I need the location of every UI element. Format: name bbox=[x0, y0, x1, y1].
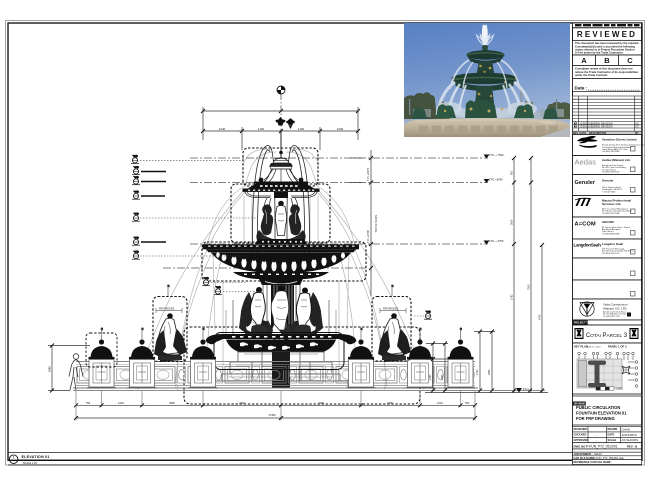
svg-text:Tel: (853) 2872 2736: Tel: (853) 2872 2736 bbox=[603, 316, 619, 318]
svg-text:DRAWN: DRAWN bbox=[608, 427, 618, 431]
svg-text:Venetian Orient Limited: Venetian Orient Limited bbox=[602, 138, 637, 142]
svg-text:FOUNTAIN ELEVATION 01: FOUNTAIN ELEVATION 01 bbox=[576, 411, 627, 416]
svg-text:AECOM: AECOM bbox=[602, 220, 614, 224]
svg-text:1850: 1850 bbox=[169, 401, 175, 405]
svg-text:Tel: (853) 2882 8888: Tel: (853) 2882 8888 bbox=[602, 151, 619, 153]
svg-text:A=COM: A=COM bbox=[575, 222, 596, 228]
svg-text:P-FUN_P72_051/001: P-FUN_P72_051/001 bbox=[586, 444, 618, 448]
svg-text:REVIEWED: REVIEWED bbox=[577, 30, 637, 39]
svg-text:A: A bbox=[581, 56, 587, 65]
svg-text:T.P.L + 4750: T.P.L + 4750 bbox=[489, 239, 504, 243]
svg-text:(Macau) CO. LTD.: (Macau) CO. LTD. bbox=[603, 306, 627, 310]
svg-text:1100: 1100 bbox=[258, 127, 264, 131]
svg-text:AS SHOWN: AS SHOWN bbox=[622, 438, 638, 442]
svg-text:1100: 1100 bbox=[298, 127, 304, 131]
svg-text:Tel: (853) 2833 1029: Tel: (853) 2833 1029 bbox=[602, 172, 619, 174]
svg-text:2340: 2340 bbox=[239, 401, 245, 405]
svg-text:1280: 1280 bbox=[429, 374, 432, 380]
svg-text:LangdonSeah: LangdonSeah bbox=[574, 243, 602, 248]
svg-text:Gensler: Gensler bbox=[575, 180, 596, 186]
svg-text:JOB NUMBER :: JOB NUMBER : bbox=[574, 452, 593, 456]
svg-text:1: 1 bbox=[13, 455, 15, 459]
svg-text:DATE: DATE bbox=[608, 433, 615, 437]
svg-text:20/06/16: 20/06/16 bbox=[580, 126, 590, 129]
svg-text:Tel: (853) 8898 7888: Tel: (853) 8898 7888 bbox=[602, 233, 619, 235]
svg-text:FOR FRP DRAWING: FOR FRP DRAWING bbox=[576, 416, 615, 421]
svg-text:T.P.L +6780: T.P.L +6780 bbox=[367, 229, 370, 243]
svg-text:T.P.L +8075: T.P.L +8075 bbox=[367, 167, 370, 181]
svg-text:REFERENCE CAD FILE NAME :: REFERENCE CAD FILE NAME : bbox=[574, 460, 613, 464]
svg-text:-: - bbox=[596, 433, 597, 437]
svg-text:800: 800 bbox=[511, 170, 514, 175]
svg-text:Aedas (Macau) Ltd.: Aedas (Macau) Ltd. bbox=[602, 158, 631, 162]
svg-text:Gensler: Gensler bbox=[602, 179, 614, 183]
svg-text:Langdon Seah: Langdon Seah bbox=[602, 242, 623, 246]
svg-text:T 213.327.3600: T 213.327.3600 bbox=[602, 191, 615, 193]
svg-text:1240: 1240 bbox=[219, 127, 226, 131]
svg-text:SCALE 1:2500: SCALE 1:2500 bbox=[586, 346, 601, 349]
svg-text:1782: 1782 bbox=[511, 294, 514, 300]
svg-text:B: B bbox=[604, 56, 610, 65]
svg-text:© panoramio: © panoramio bbox=[541, 122, 555, 125]
svg-text:Services Ltd.: Services Ltd. bbox=[602, 202, 621, 206]
svg-text:750: 750 bbox=[465, 401, 470, 405]
svg-text:1210: 1210 bbox=[118, 401, 124, 405]
svg-text:31123: 31123 bbox=[594, 452, 602, 456]
svg-text:4750: 4750 bbox=[539, 314, 542, 320]
svg-text:1850: 1850 bbox=[387, 401, 393, 405]
svg-text:Tel: (853) 2833 1710: Tel: (853) 2833 1710 bbox=[602, 253, 619, 255]
svg-text:CHAO: CHAO bbox=[622, 427, 631, 431]
svg-text:2340: 2340 bbox=[318, 401, 324, 405]
svg-text:under the Trade Contract.: under the Trade Contract. bbox=[575, 73, 608, 77]
svg-text:Date :: Date : bbox=[575, 86, 588, 91]
svg-text:Aedas: Aedas bbox=[575, 158, 597, 167]
svg-text:F.F.L.: F.F.L. bbox=[523, 387, 530, 391]
svg-text:17400: 17400 bbox=[268, 413, 276, 417]
svg-text:T.P.L + 7500: T.P.L + 7500 bbox=[489, 153, 504, 157]
svg-text:GENERAL REVISION: GENERAL REVISION bbox=[589, 126, 613, 129]
svg-text:12/04/2016: 12/04/2016 bbox=[622, 433, 637, 437]
svg-text:T.P.L +6780: T.P.L +6780 bbox=[489, 178, 503, 182]
svg-text:CAD FILE NAME :: CAD FILE NAME : bbox=[574, 456, 596, 460]
svg-text:Tel: (853) 2875 3088: Tel: (853) 2875 3088 bbox=[602, 213, 619, 215]
svg-text:5.4 for action by the Tra: 5.4 for action by the Trade Contractor. bbox=[575, 51, 624, 55]
svg-text:KC: KC bbox=[636, 126, 640, 129]
svg-text:ELEVATION 01: ELEVATION 01 bbox=[22, 455, 50, 459]
svg-text:-: - bbox=[596, 438, 597, 442]
svg-text:1240: 1240 bbox=[337, 127, 344, 131]
svg-text:REV : B: REV : B bbox=[627, 444, 637, 448]
svg-text:C: C bbox=[627, 56, 633, 65]
svg-text:2400: 2400 bbox=[441, 374, 444, 380]
svg-text:TOP OF BASIN: TOP OF BASIN bbox=[375, 215, 378, 233]
svg-text:7500: 7500 bbox=[528, 284, 531, 290]
svg-text:PANEL 1 OF 3: PANEL 1 OF 3 bbox=[608, 345, 627, 349]
svg-text:PUBLIC CIRCULATION: PUBLIC CIRCULATION bbox=[576, 405, 620, 410]
svg-text:1210: 1210 bbox=[437, 401, 443, 405]
svg-text:PROJECT TITLE: PROJECT TITLE bbox=[574, 322, 594, 325]
svg-text:750: 750 bbox=[86, 401, 91, 405]
svg-text:SCALE 1:25: SCALE 1:25 bbox=[23, 462, 37, 465]
svg-text:P-FUN_P72_051/001.dwg: P-FUN_P72_051/001.dwg bbox=[594, 456, 625, 460]
svg-text:CHECKED: CHECKED bbox=[574, 433, 587, 437]
svg-text:3050: 3050 bbox=[511, 219, 514, 225]
svg-text:2980: 2980 bbox=[488, 369, 491, 375]
svg-text:SCALE: SCALE bbox=[608, 438, 617, 442]
svg-text:1:2500: 1:2500 bbox=[616, 388, 624, 391]
svg-text:1700: 1700 bbox=[476, 369, 479, 375]
svg-text:DESIGNED: DESIGNED bbox=[574, 427, 588, 431]
svg-text:2980: 2980 bbox=[48, 366, 52, 372]
svg-text:APPROVED: APPROVED bbox=[574, 438, 589, 442]
